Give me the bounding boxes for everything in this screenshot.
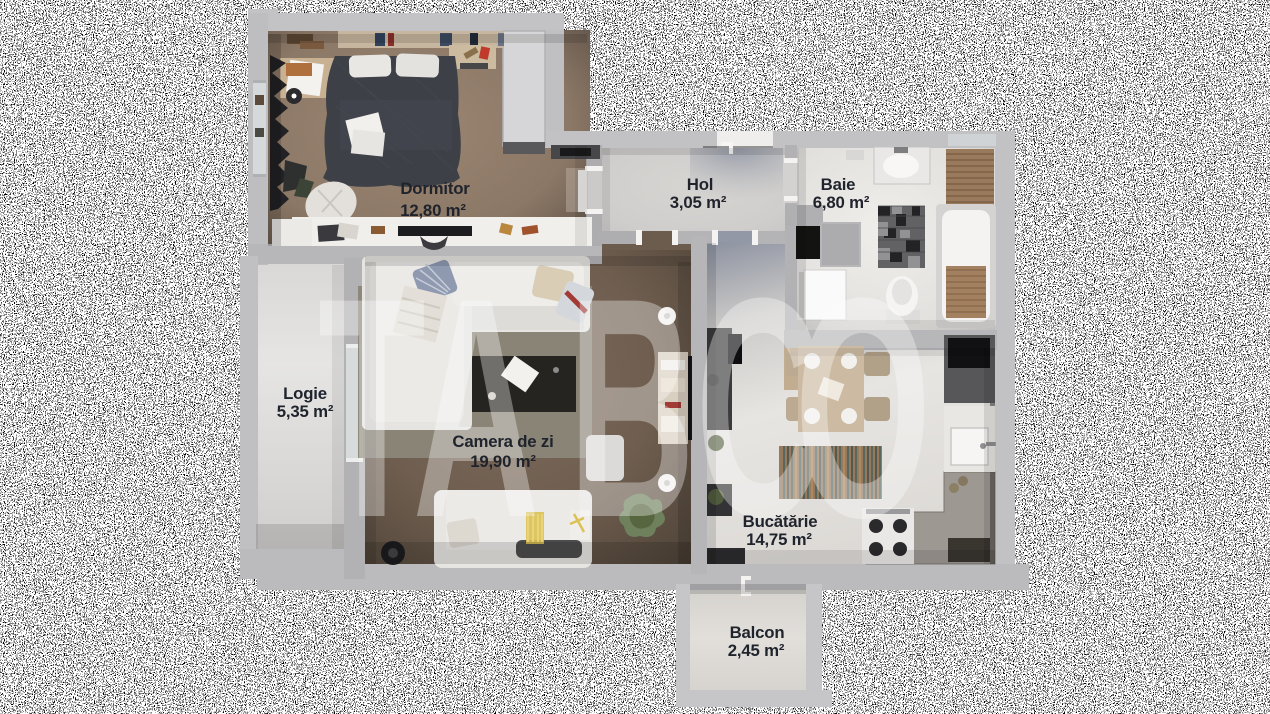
svg-text:TABCO: TABCO: [318, 233, 931, 583]
svg-text:Dormitor: Dormitor: [400, 179, 470, 198]
svg-text:2,45 m²: 2,45 m²: [728, 641, 785, 660]
svg-text:Bucătărie: Bucătărie: [743, 512, 818, 531]
svg-text:6,80 m²: 6,80 m²: [813, 193, 870, 212]
svg-text:Hol: Hol: [687, 175, 713, 194]
svg-text:3,05 m²: 3,05 m²: [670, 193, 727, 212]
svg-text:5,35 m²: 5,35 m²: [277, 402, 334, 421]
svg-text:Camera de zi: Camera de zi: [452, 432, 553, 451]
svg-text:Logie: Logie: [283, 384, 327, 403]
svg-text:14,75 m²: 14,75 m²: [746, 530, 812, 549]
svg-text:Baie: Baie: [821, 175, 856, 194]
svg-text:Balcon: Balcon: [730, 623, 785, 642]
svg-text:19,90 m²: 19,90 m²: [470, 452, 536, 471]
svg-text:12,80 m²: 12,80 m²: [400, 201, 466, 220]
